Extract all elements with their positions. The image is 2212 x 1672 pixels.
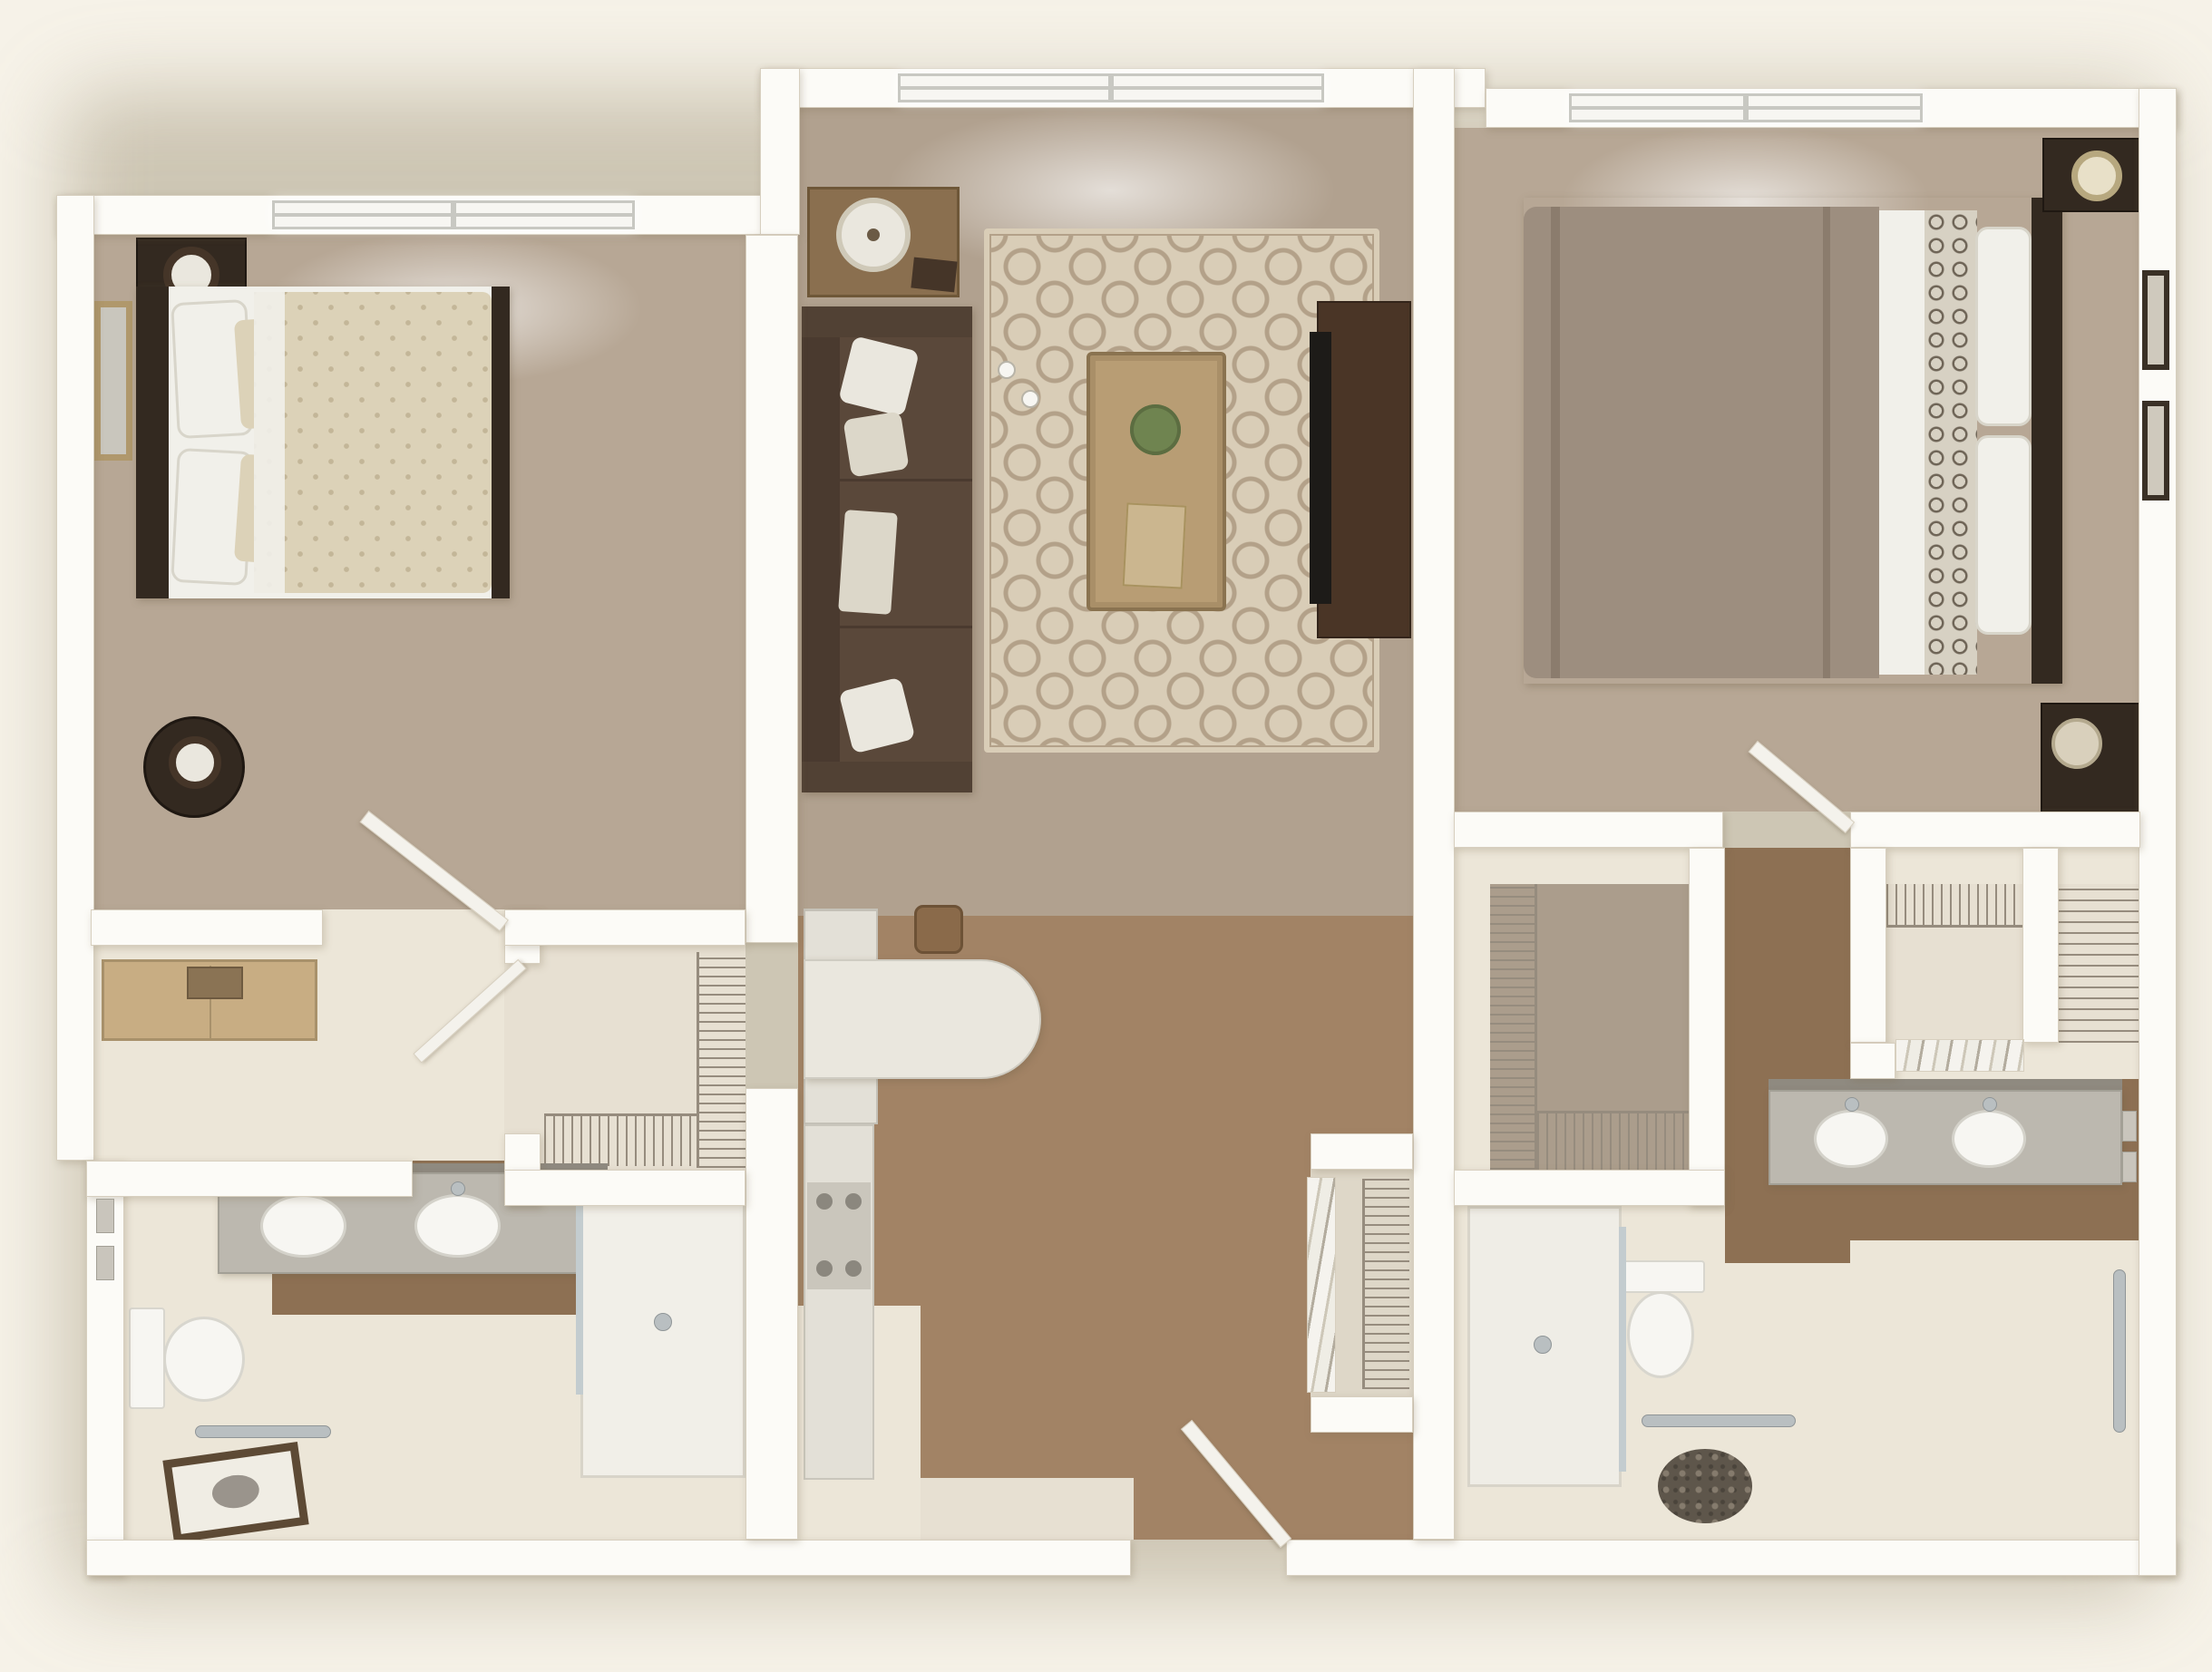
bed-2-comforter-fold — [1823, 207, 1830, 678]
cone-lamp — [169, 736, 221, 789]
wall-bedroom1-living-lower — [745, 1088, 798, 1540]
shower-2-drain — [1534, 1336, 1552, 1354]
faucet — [1845, 1097, 1859, 1112]
closet-1-wire-shelf — [544, 1113, 697, 1166]
bed-1-sheet-fold — [254, 292, 285, 593]
bed-1-headboard — [136, 287, 169, 598]
wall-bifold-bottom-stub — [1850, 1043, 1895, 1079]
wall-closet2-bottom — [1454, 1170, 1725, 1206]
window-mullion — [275, 213, 632, 217]
sofa — [802, 306, 972, 792]
base-cabinets — [804, 1124, 874, 1480]
shower-1 — [580, 1174, 745, 1478]
wall-entry-closet-bottom — [1311, 1396, 1413, 1433]
bed-1 — [136, 287, 510, 598]
television — [1310, 332, 1331, 604]
shower-1-glass-panel — [576, 1177, 583, 1395]
hat-box — [2051, 718, 2102, 769]
wall-bifold-linen-divider — [2022, 848, 2059, 1043]
wall-entry-closet-top — [1311, 1133, 1413, 1170]
throw-blanket — [838, 510, 898, 615]
wall-closet2-east — [1689, 848, 1725, 1206]
entry-tile-patch — [921, 1478, 1134, 1540]
wall-bathroom1-top — [86, 1161, 413, 1197]
sink — [1814, 1110, 1888, 1168]
window-mullion — [901, 86, 1321, 90]
bedroom-1-window — [272, 200, 635, 229]
bar-stool — [914, 905, 963, 954]
wall-bottom-west — [86, 1540, 1131, 1576]
wall-bottom-east — [1286, 1540, 2177, 1576]
faucet — [1983, 1097, 1997, 1112]
table-lamp — [2071, 151, 2122, 201]
jewelry-box — [187, 967, 243, 999]
wall-bedroom1-living — [745, 235, 798, 943]
bedroom-2-window — [1569, 93, 1923, 122]
bed-2-headboard — [2032, 198, 2062, 684]
sink — [414, 1194, 501, 1258]
bed-2-trellis-runner — [1925, 210, 1977, 675]
wall-bedroom1-bottom — [91, 909, 323, 946]
wall-art-frame — [2142, 270, 2169, 370]
wall-bedroom2-bottom-east — [1850, 812, 2140, 848]
bed-2-sheet-band — [1879, 210, 1925, 675]
bifold-closet-shelf — [1886, 884, 2022, 928]
burner — [816, 1193, 833, 1210]
light-switch — [96, 1246, 114, 1280]
throw-pillow — [838, 335, 920, 417]
light-switch — [2122, 1152, 2137, 1182]
toilet-1-bowl — [163, 1317, 245, 1402]
wall-mirror — [94, 301, 132, 461]
burner — [845, 1260, 862, 1277]
closet-1-wire-shelf — [697, 952, 745, 1168]
wall-left-upper — [56, 195, 94, 1161]
sofa-arm — [802, 306, 972, 337]
double-sink-vanity-2 — [1769, 1090, 2122, 1185]
sofa-arm — [802, 762, 972, 792]
light-switch — [96, 1199, 114, 1233]
wall-art-frame — [2142, 401, 2169, 501]
grab-bar — [2113, 1269, 2126, 1433]
wall-closet1-top — [504, 909, 745, 946]
faucet — [451, 1181, 465, 1196]
wall-bifold-west — [1850, 848, 1886, 1043]
entry-closet-bifold-doors — [1307, 1177, 1336, 1393]
wall-bedroom2-bottom-west — [1454, 812, 1723, 848]
closet-2-wire-shelf — [1490, 884, 1537, 1170]
entry-closet-wire-shelf — [1362, 1179, 1409, 1389]
grab-bar — [1642, 1414, 1796, 1427]
decor-box — [911, 258, 957, 293]
wall-living-bedroom2 — [1413, 68, 1455, 1540]
cooktop — [807, 1182, 871, 1289]
floor-plan-stage — [0, 0, 2212, 1672]
window-mullion — [1572, 106, 1920, 110]
sofa-cushion-seam — [840, 626, 972, 628]
drum-lamp-finial — [867, 228, 880, 241]
vanity-mirror-2 — [1769, 1079, 2122, 1090]
bed-2-comforter-fold — [1551, 207, 1560, 678]
shower-1-drain — [654, 1313, 672, 1331]
throw-pillow — [839, 677, 916, 754]
burner — [816, 1260, 833, 1277]
sofa-back — [802, 306, 840, 792]
art-motif — [210, 1473, 262, 1512]
living-room-window — [898, 73, 1324, 102]
bed-2-pillow — [1975, 227, 2032, 426]
sofa-cushion-seam — [840, 479, 972, 481]
toilet-2 — [1614, 1260, 1705, 1293]
decor-tray — [1123, 502, 1187, 588]
bed-2-pillow — [1975, 435, 2032, 635]
toilet-2-bowl — [1627, 1291, 1694, 1378]
peninsula-counter — [804, 959, 1041, 1079]
grab-bar — [195, 1425, 331, 1438]
cup — [1021, 390, 1039, 408]
sink — [1952, 1110, 2026, 1168]
bed-1-foot-rail — [492, 287, 510, 598]
shower-2 — [1467, 1206, 1622, 1487]
linen-closet-wire-shelves — [2059, 884, 2139, 1043]
sink — [260, 1194, 346, 1258]
throw-pillow — [843, 411, 909, 477]
bifold-doors — [1895, 1039, 2024, 1072]
burner — [845, 1193, 862, 1210]
bed-2 — [1524, 198, 2062, 684]
closet-2-wire-shelf — [1537, 1111, 1689, 1170]
cup — [998, 361, 1016, 379]
light-switch — [2122, 1111, 2137, 1142]
toilet-1 — [129, 1307, 165, 1409]
bed-1-comforter — [254, 292, 492, 593]
potted-plant — [1130, 404, 1181, 455]
shower-2-glass-panel — [1619, 1227, 1626, 1472]
wall-step-living-left — [760, 68, 800, 235]
pebble-rug — [1658, 1449, 1752, 1523]
wall-closet1-bottom — [504, 1170, 745, 1206]
